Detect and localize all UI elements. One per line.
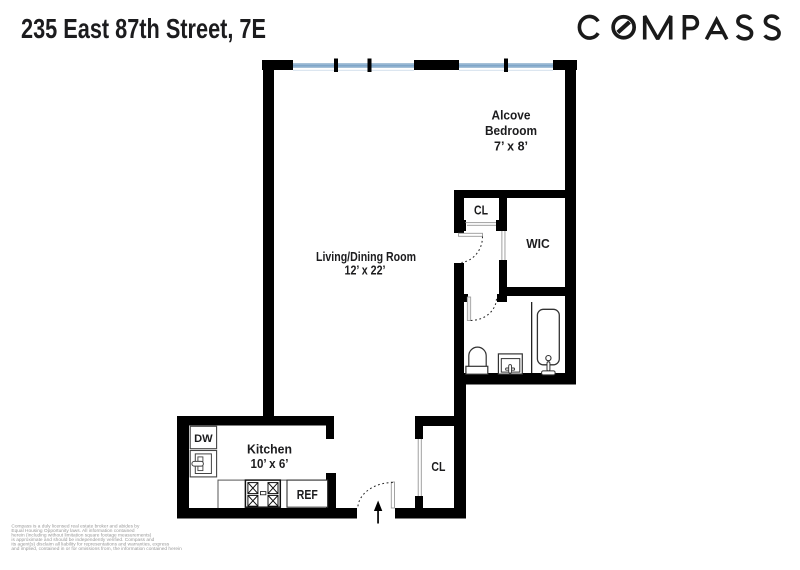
svg-text:and implied, contained in or f: and implied, contained in or for omissio… bbox=[11, 546, 182, 552]
svg-text:REF: REF bbox=[297, 488, 318, 502]
svg-text:7’ x 8’: 7’ x 8’ bbox=[494, 140, 528, 154]
svg-text:DW: DW bbox=[194, 433, 213, 445]
svg-text:Bedroom: Bedroom bbox=[485, 124, 537, 138]
svg-text:Living/Dining Room: Living/Dining Room bbox=[316, 250, 416, 264]
svg-text:CL: CL bbox=[431, 460, 445, 474]
svg-text:12’ x 22’: 12’ x 22’ bbox=[345, 264, 386, 278]
svg-text:235 East 87th Street, 7E: 235 East 87th Street, 7E bbox=[21, 13, 266, 44]
svg-text:10’ x 6’: 10’ x 6’ bbox=[251, 457, 289, 471]
svg-text:Alcove: Alcove bbox=[492, 109, 531, 123]
svg-text:CL: CL bbox=[474, 204, 488, 218]
svg-text:WIC: WIC bbox=[526, 236, 550, 251]
svg-text:Kitchen: Kitchen bbox=[247, 443, 292, 457]
